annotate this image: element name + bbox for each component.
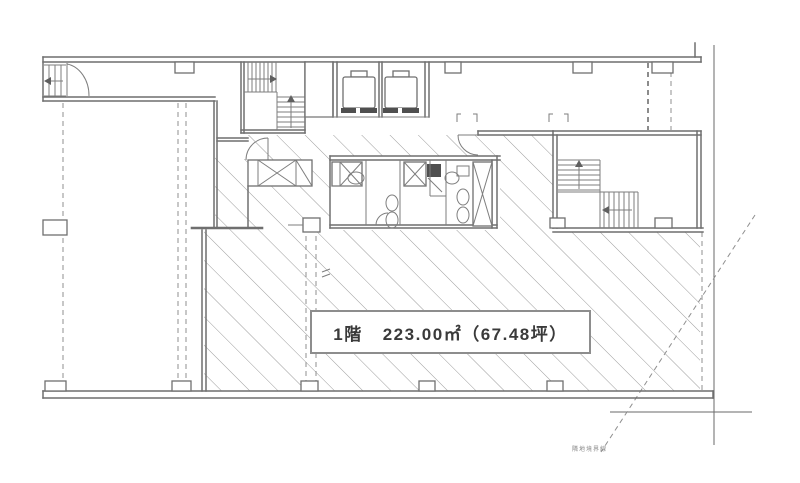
duct-shaft-tall — [473, 162, 492, 226]
elevator-car-1 — [341, 71, 377, 113]
duct-shaft-left — [332, 162, 362, 186]
entrance-steps-and-door — [44, 63, 89, 96]
duct-shaft-long — [248, 160, 312, 186]
elevator-bank — [305, 62, 429, 117]
stairwell-upper-left — [241, 62, 305, 133]
floor-plan-drawing — [0, 0, 800, 483]
elevator-car-2 — [383, 71, 419, 113]
dark-shaft — [427, 164, 441, 177]
duct-shaft-mid — [404, 162, 426, 186]
floor-label: 1階 — [333, 320, 362, 345]
area-sqm: 223.00㎡ — [383, 320, 463, 345]
area-label-box: 1階223.00㎡（67.48坪） — [310, 310, 591, 354]
area-tsubo: （67.48坪） — [462, 320, 568, 345]
boundary-note-text: 隣地境界線 — [572, 444, 607, 453]
floor-plan-canvas: 1階223.00㎡（67.48坪） 隣地境界線 — [0, 0, 800, 483]
